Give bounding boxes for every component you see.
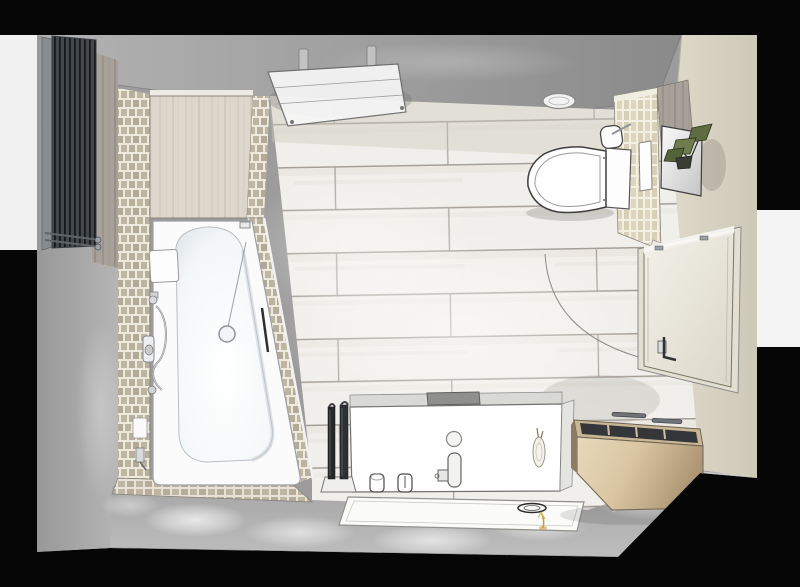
enclosure-face (150, 96, 253, 218)
radiator-side-panel (42, 37, 52, 250)
hose-elbow (148, 386, 156, 394)
ceiling-light[interactable] (543, 94, 575, 109)
washbasin-console[interactable] (350, 392, 574, 492)
hand-shower-head[interactable] (149, 296, 157, 304)
oval-dish[interactable] (518, 504, 546, 513)
radiator-valve[interactable] (95, 237, 101, 243)
tub-drain[interactable] (219, 326, 235, 342)
door-hinge-1 (655, 246, 663, 250)
room-shell (37, 32, 757, 557)
door-hinge-2 (700, 236, 708, 240)
counter-tray[interactable] (427, 392, 480, 405)
tub-faucet[interactable] (240, 222, 250, 228)
outside-white-strip-left (0, 35, 37, 250)
pane-hinge-right (400, 106, 404, 110)
pane-hinge-left (290, 120, 294, 124)
plant-pot (676, 156, 692, 169)
radiator-slats[interactable] (52, 36, 96, 248)
panel-bracket-right (367, 46, 376, 68)
mat-outer[interactable] (339, 497, 584, 531)
wall-radiator[interactable] (42, 36, 101, 250)
faucet-control[interactable] (438, 470, 448, 481)
toilet-bowl[interactable] (528, 147, 606, 213)
basin-drain[interactable] (447, 432, 462, 447)
render-viewport (0, 0, 800, 587)
light-ring[interactable] (543, 94, 575, 109)
brush-1[interactable] (328, 407, 335, 479)
radiator-valve-2[interactable] (95, 244, 101, 250)
vase-body (533, 437, 545, 467)
door-leaf[interactable] (644, 232, 734, 387)
holder-body[interactable] (600, 125, 624, 150)
mixer-knob[interactable] (145, 345, 153, 355)
bath-head-enclosure (150, 90, 270, 218)
bath-mat-tray[interactable] (339, 497, 584, 531)
bathroom-render (0, 0, 800, 587)
outside-white-strip-right (757, 210, 800, 347)
soap-dish[interactable] (133, 418, 147, 438)
tumbler-1[interactable] (370, 474, 384, 492)
lower-fitting (136, 448, 144, 462)
brush-2[interactable] (340, 405, 348, 479)
bath-headrest[interactable] (149, 249, 179, 282)
wall-niche (639, 141, 652, 191)
enclosure-top-edge (150, 90, 253, 96)
toilet-cistern[interactable] (604, 148, 631, 209)
sprig-base (539, 526, 547, 530)
basin-faucet[interactable] (448, 453, 461, 487)
stand-base (321, 477, 356, 492)
entry-door[interactable] (638, 226, 741, 393)
